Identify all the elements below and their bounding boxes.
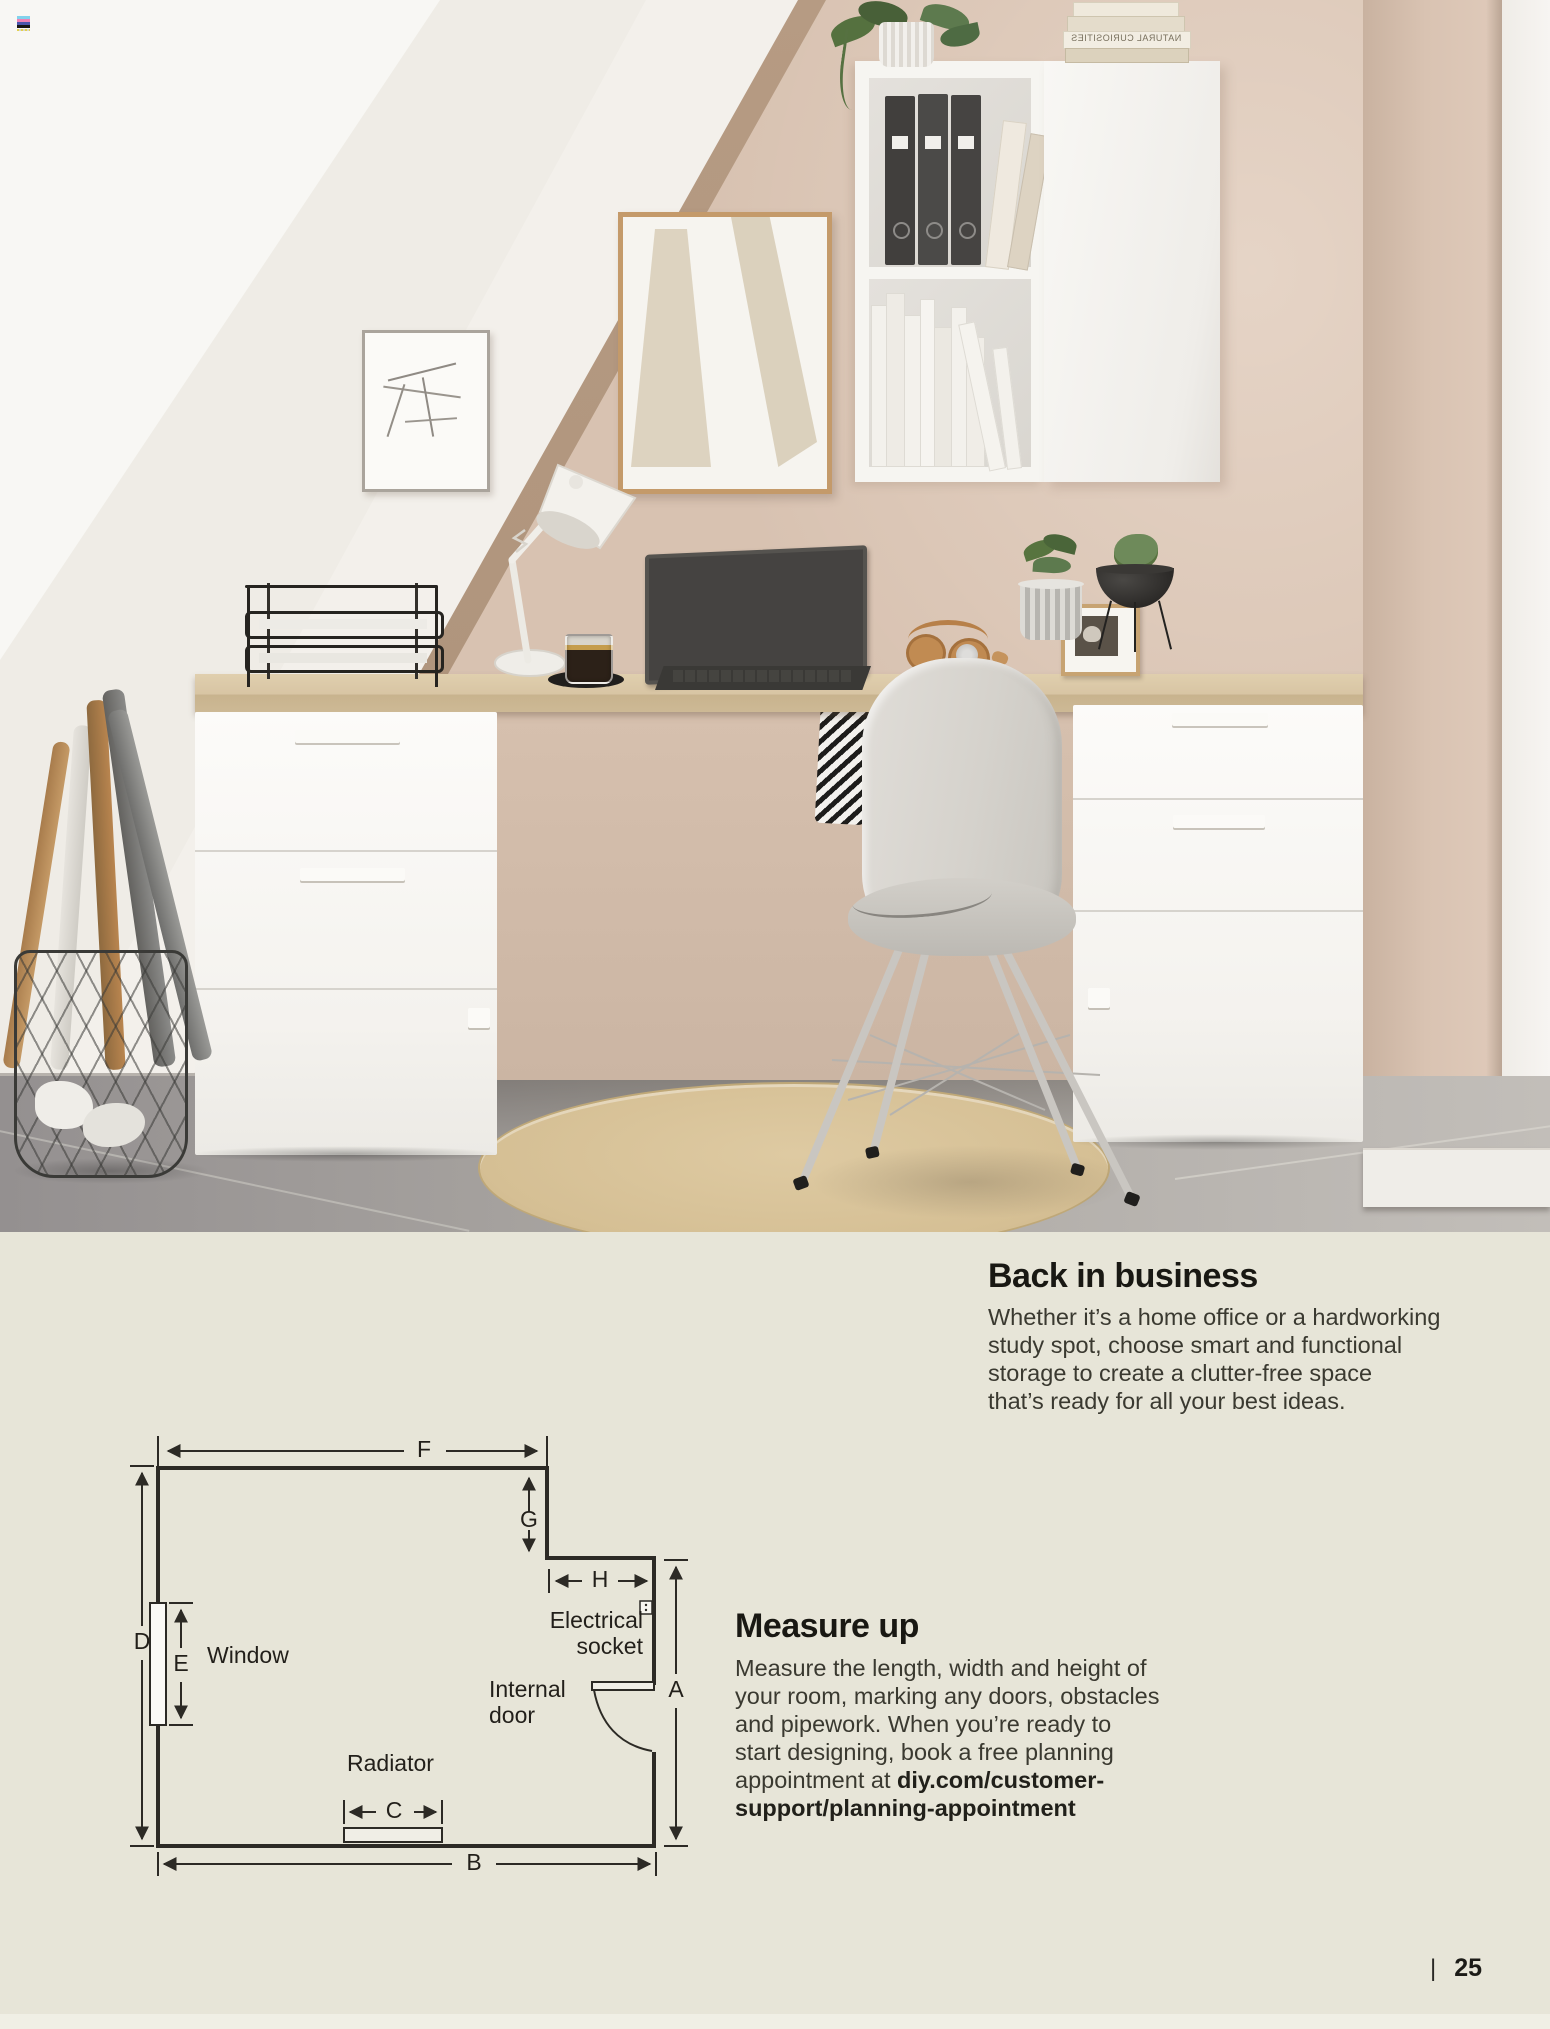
lamp-lower-arm bbox=[512, 560, 528, 660]
measure-up-title: Measure up bbox=[735, 1607, 919, 1646]
drawer-handle bbox=[1172, 713, 1268, 726]
left-drawer-unit bbox=[195, 712, 497, 1155]
coffee-glass bbox=[565, 634, 613, 684]
binder-label bbox=[958, 136, 974, 149]
dim-label-f: F bbox=[417, 1436, 431, 1462]
body-text-line: appointment at diy.com/customer- bbox=[735, 1766, 1160, 1794]
stacked-book-title: NATURAL CURIOSITIES bbox=[1063, 33, 1189, 43]
drawer-handle bbox=[300, 868, 405, 881]
chair-feet bbox=[792, 1146, 1140, 1208]
room-measurement-diagram: F G H D E A B C Window Electrical socket… bbox=[100, 1420, 720, 1890]
sketch-stroke bbox=[387, 384, 406, 437]
electrical-socket-label-line1: Electrical bbox=[550, 1607, 643, 1633]
plant-leaf bbox=[1032, 556, 1071, 575]
page-number: 25 bbox=[1454, 1954, 1482, 1983]
drawer-seam bbox=[1073, 910, 1363, 912]
wall-cabinet-open bbox=[855, 61, 1044, 482]
back-in-business-title: Back in business bbox=[988, 1257, 1258, 1296]
art-leaf-shape bbox=[731, 217, 817, 467]
body-text-line: and pipework. When you’re ready to bbox=[735, 1710, 1160, 1738]
binder-ring bbox=[926, 222, 943, 239]
dim-label-c: C bbox=[386, 1797, 403, 1823]
radiator-symbol bbox=[344, 1828, 442, 1842]
door-leaf-symbol bbox=[592, 1682, 654, 1690]
binder-ring bbox=[893, 222, 910, 239]
shelf-book bbox=[934, 327, 952, 467]
dim-label-e: E bbox=[173, 1650, 188, 1676]
window-symbol bbox=[150, 1603, 166, 1725]
sketch-stroke bbox=[383, 386, 461, 399]
back-in-business-body: Whether it’s a home office or a hardwork… bbox=[988, 1303, 1440, 1415]
color-bar-dots bbox=[17, 29, 30, 31]
binder-ring bbox=[959, 222, 976, 239]
socket-dot bbox=[645, 1609, 647, 1611]
chair-legs bbox=[770, 915, 1160, 1215]
page-bottom-edge bbox=[0, 2014, 1550, 2029]
binder-label bbox=[925, 136, 941, 149]
binder-label bbox=[892, 136, 908, 149]
desk-plant-bowl bbox=[1090, 528, 1182, 653]
door-frame-shadow bbox=[1486, 0, 1502, 1160]
plant-pot bbox=[879, 22, 934, 67]
stacked-books: NATURAL CURIOSITIES bbox=[1063, 2, 1189, 62]
internal-door-label-line2: door bbox=[489, 1702, 535, 1728]
body-text-line: start designing, book a free planning bbox=[735, 1738, 1160, 1766]
stacked-book bbox=[1067, 16, 1185, 32]
wall-cabinet-door bbox=[1044, 61, 1220, 482]
socket-dot bbox=[645, 1604, 647, 1606]
electrical-socket-label-line2: socket bbox=[577, 1633, 644, 1659]
plant-pot-rim bbox=[1018, 579, 1084, 589]
body-text-line: Measure the length, width and height of bbox=[735, 1654, 1160, 1682]
shelf-book bbox=[920, 299, 935, 467]
print-color-bar bbox=[17, 16, 30, 31]
tray-paper bbox=[259, 619, 427, 629]
wire-basket bbox=[14, 950, 188, 1178]
radiator-label: Radiator bbox=[347, 1750, 434, 1776]
lamp-hinge bbox=[569, 475, 583, 489]
binder bbox=[951, 95, 981, 265]
drawer-handle bbox=[295, 730, 400, 743]
internal-door-label-line1: Internal bbox=[489, 1676, 566, 1702]
laptop bbox=[643, 548, 871, 692]
dim-label-h: H bbox=[592, 1566, 609, 1592]
crumpled-paper bbox=[83, 1103, 145, 1147]
stacked-book bbox=[1073, 2, 1179, 17]
stand-leg bbox=[1134, 602, 1136, 652]
dim-label-g: G bbox=[520, 1506, 538, 1532]
drawer-seam bbox=[1073, 798, 1363, 800]
door-swing-arc bbox=[594, 1690, 652, 1751]
letter-tray bbox=[245, 583, 441, 691]
stand-leg bbox=[1158, 601, 1172, 650]
shelf-book bbox=[886, 293, 905, 467]
planning-appointment-link[interactable]: support/planning-appointment bbox=[735, 1794, 1160, 1822]
shelf-book bbox=[871, 305, 887, 467]
planning-appointment-link[interactable]: diy.com/customer- bbox=[897, 1767, 1104, 1793]
stacked-book bbox=[1065, 48, 1189, 63]
body-text-line: study spot, choose smart and functional bbox=[988, 1331, 1440, 1359]
window-label: Window bbox=[207, 1642, 289, 1668]
body-text-prefix: appointment at bbox=[735, 1767, 897, 1793]
tray-top-rail bbox=[245, 585, 438, 588]
chair-cross-wires bbox=[832, 1030, 1100, 1115]
left-unit-shadow bbox=[190, 1146, 502, 1162]
tray-paper bbox=[259, 653, 427, 663]
body-text-line: your room, marking any doors, obstacles bbox=[735, 1682, 1160, 1710]
door-frame bbox=[1502, 0, 1550, 1155]
drawer-seam bbox=[195, 988, 497, 990]
footer-separator: | bbox=[1430, 1955, 1436, 1983]
shelf-book bbox=[904, 315, 921, 467]
right-wall-shade bbox=[1363, 0, 1502, 1150]
stand-leg bbox=[1098, 601, 1112, 650]
color-bar-black bbox=[17, 25, 30, 28]
body-text-line: that’s ready for all your best ideas. bbox=[988, 1387, 1440, 1415]
hero-photo: NATURAL CURIOSITIES bbox=[0, 0, 1550, 1232]
catalog-page: NATURAL CURIOSITIES bbox=[0, 0, 1550, 2029]
body-text-line: Whether it’s a home office or a hardwork… bbox=[988, 1303, 1440, 1331]
skirting-board bbox=[1363, 1148, 1550, 1207]
dim-label-b: B bbox=[466, 1849, 481, 1875]
dim-label-a: A bbox=[668, 1676, 684, 1702]
plant-pot-silver bbox=[1020, 583, 1082, 640]
body-text-line: storage to create a clutter-free space bbox=[988, 1359, 1440, 1387]
door-knob bbox=[468, 1008, 490, 1028]
desk-lamp bbox=[430, 420, 670, 690]
drawer-handle bbox=[1173, 815, 1265, 828]
bowl-rim bbox=[1096, 564, 1174, 574]
binder bbox=[885, 96, 915, 265]
dim-label-d: D bbox=[134, 1628, 151, 1654]
content-panel: Back in business Whether it’s a home off… bbox=[0, 1232, 1550, 2029]
laptop-screen bbox=[645, 545, 867, 685]
laptop-keyboard bbox=[673, 670, 853, 682]
drawer-seam bbox=[195, 850, 497, 852]
page-footer: | 25 bbox=[1430, 1954, 1510, 1983]
cabinet-plant bbox=[830, 0, 980, 120]
desk-plant-silver bbox=[1005, 535, 1095, 647]
measure-up-body: Measure the length, width and height of … bbox=[735, 1654, 1160, 1822]
